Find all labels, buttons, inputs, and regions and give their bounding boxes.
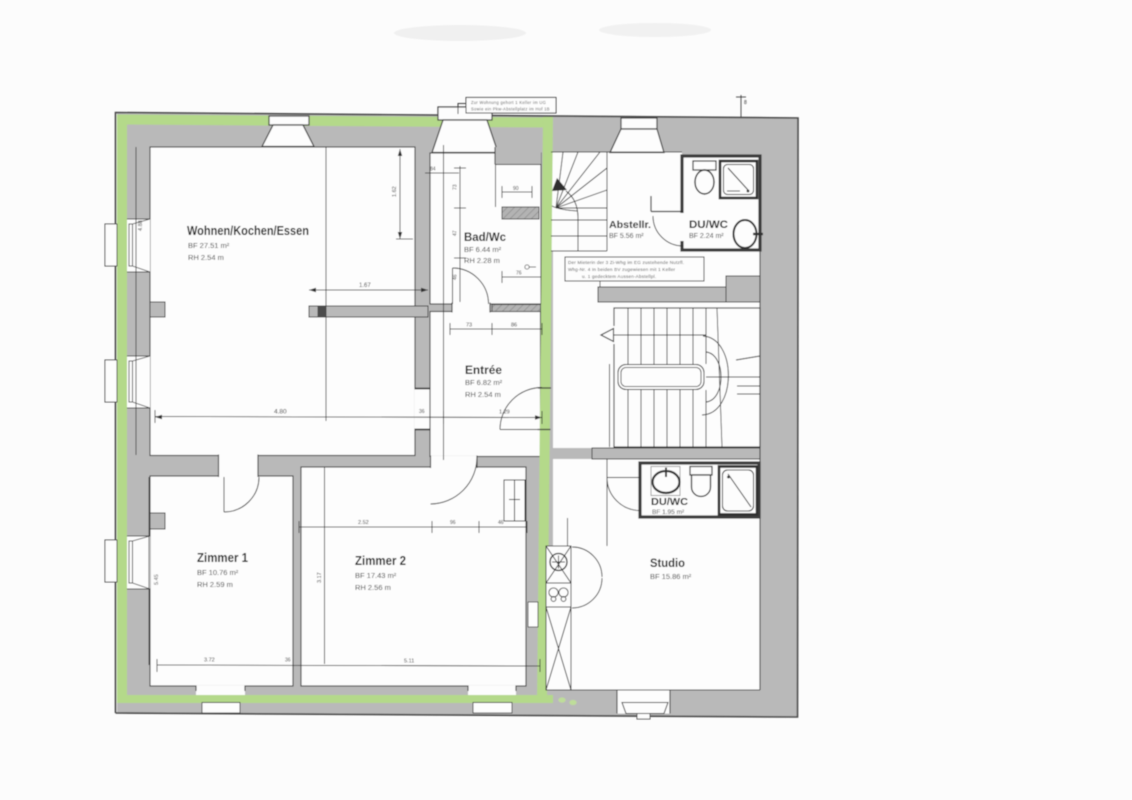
svg-text:47: 47 <box>453 230 459 236</box>
svg-text:76: 76 <box>516 271 522 277</box>
svg-text:BF 2.24 m²: BF 2.24 m² <box>689 233 724 240</box>
svg-text:BF 6.82 m²: BF 6.82 m² <box>465 378 503 387</box>
svg-text:Abstellr.: Abstellr. <box>609 219 651 231</box>
svg-text:36: 36 <box>285 658 291 664</box>
svg-text:RH 2.54 m: RH 2.54 m <box>188 253 224 262</box>
svg-text:Der Mieterin der 3 Zi-Whg im: Der Mieterin der 3 Zi-Whg im EG zustehen… <box>568 260 684 265</box>
svg-text:1.29: 1.29 <box>499 410 510 416</box>
svg-text:90: 90 <box>513 186 519 192</box>
svg-text:4.88: 4.88 <box>138 220 144 231</box>
svg-text:5.45: 5.45 <box>154 574 160 585</box>
svg-text:RH 2.56 m: RH 2.56 m <box>355 583 391 592</box>
svg-text:1.62: 1.62 <box>392 186 398 197</box>
svg-text:4.80: 4.80 <box>274 409 287 416</box>
svg-text:BF 15.86 m²: BF 15.86 m² <box>650 572 692 581</box>
svg-text:46: 46 <box>453 274 459 280</box>
svg-text:1.67: 1.67 <box>359 283 371 289</box>
svg-text:Whg-Nr. 4 In beiden BV zug: Whg-Nr. 4 In beiden BV zugewiesen mit 1 … <box>568 267 676 272</box>
svg-text:BF 27.51 m²: BF 27.51 m² <box>188 241 230 250</box>
svg-text:8: 8 <box>744 100 747 106</box>
svg-text:Zimmer 1: Zimmer 1 <box>197 551 248 565</box>
svg-text:46: 46 <box>498 520 504 526</box>
svg-text:DU/WC: DU/WC <box>689 219 728 231</box>
svg-text:DU/WC: DU/WC <box>651 496 688 508</box>
svg-text:BF 17.43 m²: BF 17.43 m² <box>355 571 397 580</box>
svg-text:3.17: 3.17 <box>317 572 323 583</box>
svg-text:Zur Wohnung gehort 1 Keller im: Zur Wohnung gehort 1 Keller im UG <box>471 100 546 105</box>
svg-text:3.72: 3.72 <box>204 658 215 664</box>
svg-text:Zimmer 2: Zimmer 2 <box>355 554 406 568</box>
svg-text:Studio: Studio <box>650 558 685 570</box>
svg-text:73: 73 <box>453 184 459 190</box>
svg-text:73: 73 <box>466 323 472 329</box>
svg-text:96: 96 <box>450 520 456 526</box>
svg-text:BF 6.44 m²: BF 6.44 m² <box>464 245 502 254</box>
svg-text:Bad/Wc: Bad/Wc <box>464 230 506 244</box>
svg-text:BF 5.56 m²: BF 5.56 m² <box>609 233 644 240</box>
svg-text:36: 36 <box>419 409 425 415</box>
svg-text:RH 2.28 m: RH 2.28 m <box>464 256 500 265</box>
svg-text:u. 1 gedecktem Aussen-Abstel: u. 1 gedecktem Aussen-Abstellpl. <box>582 274 656 279</box>
svg-text:RH 2.59 m: RH 2.59 m <box>197 580 233 589</box>
svg-text:Sowie ein Pkw-Abstellplatz im: Sowie ein Pkw-Abstellplatz im Hof 1B <box>471 107 550 112</box>
svg-text:RH 2.54 m: RH 2.54 m <box>465 390 501 399</box>
svg-text:86: 86 <box>511 323 517 329</box>
svg-text:BF 1.95 m²: BF 1.95 m² <box>652 509 685 516</box>
svg-text:84: 84 <box>430 167 436 173</box>
svg-text:5.11: 5.11 <box>404 659 414 665</box>
svg-text:Wohnen/Kochen/Essen: Wohnen/Kochen/Essen <box>187 224 309 238</box>
svg-text:Entrée: Entrée <box>465 363 502 377</box>
svg-text:2.52: 2.52 <box>358 520 369 526</box>
svg-text:BF 10.76 m²: BF 10.76 m² <box>197 568 239 577</box>
